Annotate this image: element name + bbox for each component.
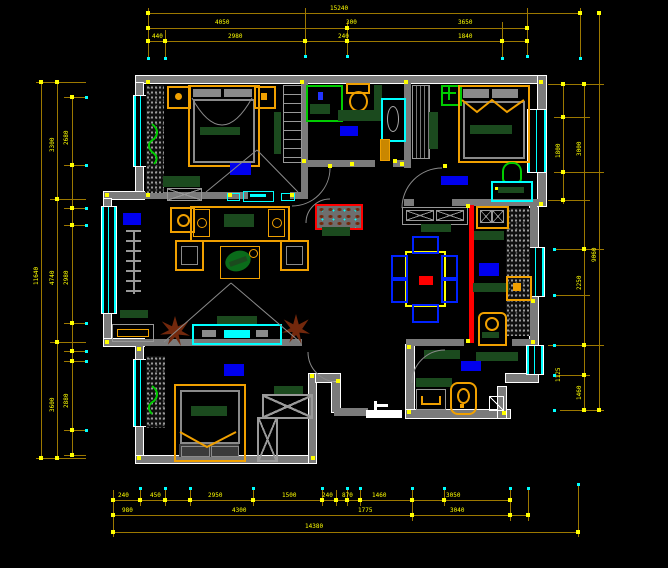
rug (224, 364, 244, 376)
vanity-counter (338, 110, 382, 121)
dim-label: 4740 (50, 271, 56, 285)
dim-label: 2950 (208, 493, 222, 499)
dim-line (64, 323, 86, 324)
dim-line (527, 8, 528, 55)
speaker (227, 193, 240, 201)
dim-label: 1500 (282, 493, 296, 499)
dim-label: 240 (118, 493, 129, 499)
dim-label: 980 (122, 508, 133, 514)
tv-cabinet (192, 324, 282, 345)
dim-line (50, 199, 86, 200)
wardrobe (262, 394, 313, 419)
cabinet (416, 378, 452, 387)
dim-label: 1840 (458, 34, 472, 40)
dim-line (57, 82, 58, 458)
dining-chair (391, 255, 408, 279)
dim-line (305, 8, 306, 55)
dim-label: 4050 (215, 20, 229, 26)
tv-icon (224, 330, 250, 338)
dim-line (64, 225, 86, 226)
door-swing-marker (377, 404, 388, 407)
shoe-cabinet (416, 389, 446, 410)
dim-line (64, 208, 86, 209)
mattress (180, 390, 240, 444)
shelf (322, 227, 350, 236)
dim-label: 3600 (50, 398, 56, 412)
sofa-cushion (224, 214, 254, 227)
dim-line (336, 490, 337, 506)
closet-clothes (274, 112, 281, 154)
dim-line (360, 490, 361, 506)
dim-label: 1460 (372, 493, 386, 499)
dim-line (253, 490, 254, 506)
rug (479, 263, 499, 276)
dim-label: 240 (338, 34, 349, 40)
dim-line (165, 30, 166, 58)
dim-line (50, 342, 86, 343)
red-partition-wall (469, 205, 474, 343)
window-entry (527, 346, 543, 374)
dim-label: 2880 (64, 394, 70, 408)
wall-top (136, 76, 546, 83)
dim-line (148, 41, 527, 42)
dim-line (72, 97, 73, 455)
dim-line (64, 97, 86, 98)
dim-line (64, 455, 86, 456)
wall-step (506, 374, 538, 382)
dim-label: 2680 (64, 131, 70, 145)
sofa (190, 206, 290, 242)
dim-line (41, 82, 42, 458)
dim-line (148, 13, 580, 14)
dining-chair (412, 304, 439, 323)
dim-label: 450 (150, 493, 161, 499)
rug (340, 126, 358, 136)
headboard (492, 89, 518, 98)
dining-chair (441, 279, 458, 303)
nightstand (254, 86, 276, 109)
low-table (167, 188, 202, 201)
dim-line (148, 8, 149, 58)
bench (163, 176, 200, 187)
media-box (202, 330, 216, 337)
counter-texture (506, 208, 530, 336)
dim-line (502, 22, 503, 58)
dim-label: 440 (152, 34, 163, 40)
dim-label: 870 (342, 493, 353, 499)
wall-right-kitchen (530, 206, 538, 250)
wall-texture (146, 356, 165, 428)
dim-line (140, 490, 141, 506)
wall-step (316, 374, 340, 382)
dim-line (560, 410, 604, 411)
headboard (193, 89, 221, 97)
bed-guest (458, 85, 530, 163)
media-box (256, 330, 268, 337)
door-arc (292, 168, 330, 206)
wall-step (104, 192, 144, 199)
dim-line (165, 490, 166, 506)
coffee-table (220, 246, 260, 279)
desk (491, 181, 533, 202)
dim-label: 15240 (330, 6, 348, 12)
wall-bath-bottom (301, 160, 375, 167)
shower-shelf (310, 104, 330, 114)
dim-line (554, 117, 590, 118)
cabinet (424, 350, 460, 359)
dim-label: 1460 (577, 386, 583, 400)
wardrobe (283, 85, 302, 163)
water-heater (450, 382, 477, 415)
wardrobe (412, 85, 430, 159)
dim-line (554, 172, 604, 173)
dim-line (580, 8, 581, 58)
dim-line (36, 458, 86, 459)
dim-label: 3650 (458, 20, 472, 26)
dining-chair (441, 255, 458, 279)
dim-line (36, 82, 86, 83)
console-table (402, 207, 468, 225)
dim-line (554, 295, 590, 296)
dim-line (528, 490, 529, 521)
dim-label: 4300 (232, 508, 246, 514)
dim-line (563, 84, 564, 204)
dim-line (412, 490, 413, 521)
desk-chair-icon (502, 162, 522, 183)
wall-hall-sill (334, 408, 368, 416)
stove (476, 206, 509, 229)
dim-line (599, 13, 600, 410)
dim-label: 14380 (305, 524, 323, 530)
rug (123, 213, 141, 225)
dim-label: 300 (346, 20, 357, 26)
headboard (463, 89, 489, 98)
dim-line (113, 515, 528, 516)
dim-line (548, 345, 604, 346)
bath-door (380, 139, 390, 161)
dim-line (148, 28, 527, 29)
cabinet (476, 352, 518, 361)
rug (461, 361, 481, 371)
dining-chair (391, 279, 408, 303)
wall-bedroom2-bottom (404, 199, 414, 206)
dim-line (64, 361, 86, 362)
dim-line (64, 165, 86, 166)
sofa-arm (193, 209, 210, 237)
armchair (280, 240, 309, 271)
dim-line (584, 84, 585, 410)
bed-small (174, 384, 246, 462)
window-seat (112, 324, 154, 342)
counter (474, 231, 504, 240)
pillow (200, 127, 240, 135)
dim-label: 1800 (556, 144, 562, 158)
dim-label: 3050 (446, 493, 460, 499)
window-living (102, 207, 116, 313)
dim-label: 1125 (556, 368, 562, 382)
dim-label: 240 (322, 493, 333, 499)
headboard (224, 89, 252, 97)
fridge (478, 312, 507, 346)
wall-texture (146, 85, 164, 193)
door-symbol (489, 396, 504, 411)
rug (230, 163, 251, 175)
shower-column (381, 98, 406, 142)
shower-head-icon (318, 92, 323, 100)
rug (441, 176, 468, 185)
wall-kitchen-bottom (406, 339, 464, 346)
wall-entry-left (406, 345, 414, 418)
dim-line (578, 484, 579, 537)
threshold-white (366, 410, 402, 418)
dim-label: 2980 (228, 34, 242, 40)
closet-clothes (429, 112, 438, 149)
dim-line (64, 430, 86, 431)
tv-wall-unit (243, 191, 274, 202)
dim-label: 9060 (592, 248, 598, 262)
toilet-bowl-icon (349, 91, 368, 112)
dim-label: 2980 (64, 271, 70, 285)
dim-label: 2250 (577, 276, 583, 290)
dim-label: 11640 (34, 267, 40, 285)
cad-canvas: 15240 4050 300 3650 440 2980 240 1840 11… (0, 0, 668, 568)
dim-line (548, 84, 604, 85)
pillow (191, 406, 227, 416)
dim-line (510, 490, 511, 521)
counter (473, 283, 509, 292)
dim-line (190, 490, 191, 506)
footboard-drawers (179, 444, 239, 457)
pillow (470, 125, 512, 134)
dim-line (548, 200, 590, 201)
speaker (281, 193, 295, 201)
dim-label: 3300 (50, 138, 56, 152)
dining-table (405, 251, 446, 307)
dim-label: 1775 (358, 508, 372, 514)
wall-kitchen-bottom (512, 339, 538, 346)
dim-line (113, 490, 114, 537)
bed-master (188, 85, 260, 167)
radiator-icon (126, 230, 141, 294)
mat (421, 224, 451, 232)
armchair (175, 240, 204, 271)
sofa-arm (268, 209, 285, 237)
sink (506, 276, 532, 301)
dim-label: 3000 (577, 142, 583, 156)
wardrobe (257, 417, 278, 462)
dim-line (113, 532, 578, 533)
dim-line (113, 500, 510, 501)
window-bedroom2 (528, 110, 546, 172)
dim-label: 3040 (450, 508, 464, 514)
dining-chair (412, 236, 439, 254)
bench (120, 310, 148, 318)
dim-line (64, 351, 86, 352)
dim-line (444, 490, 445, 506)
